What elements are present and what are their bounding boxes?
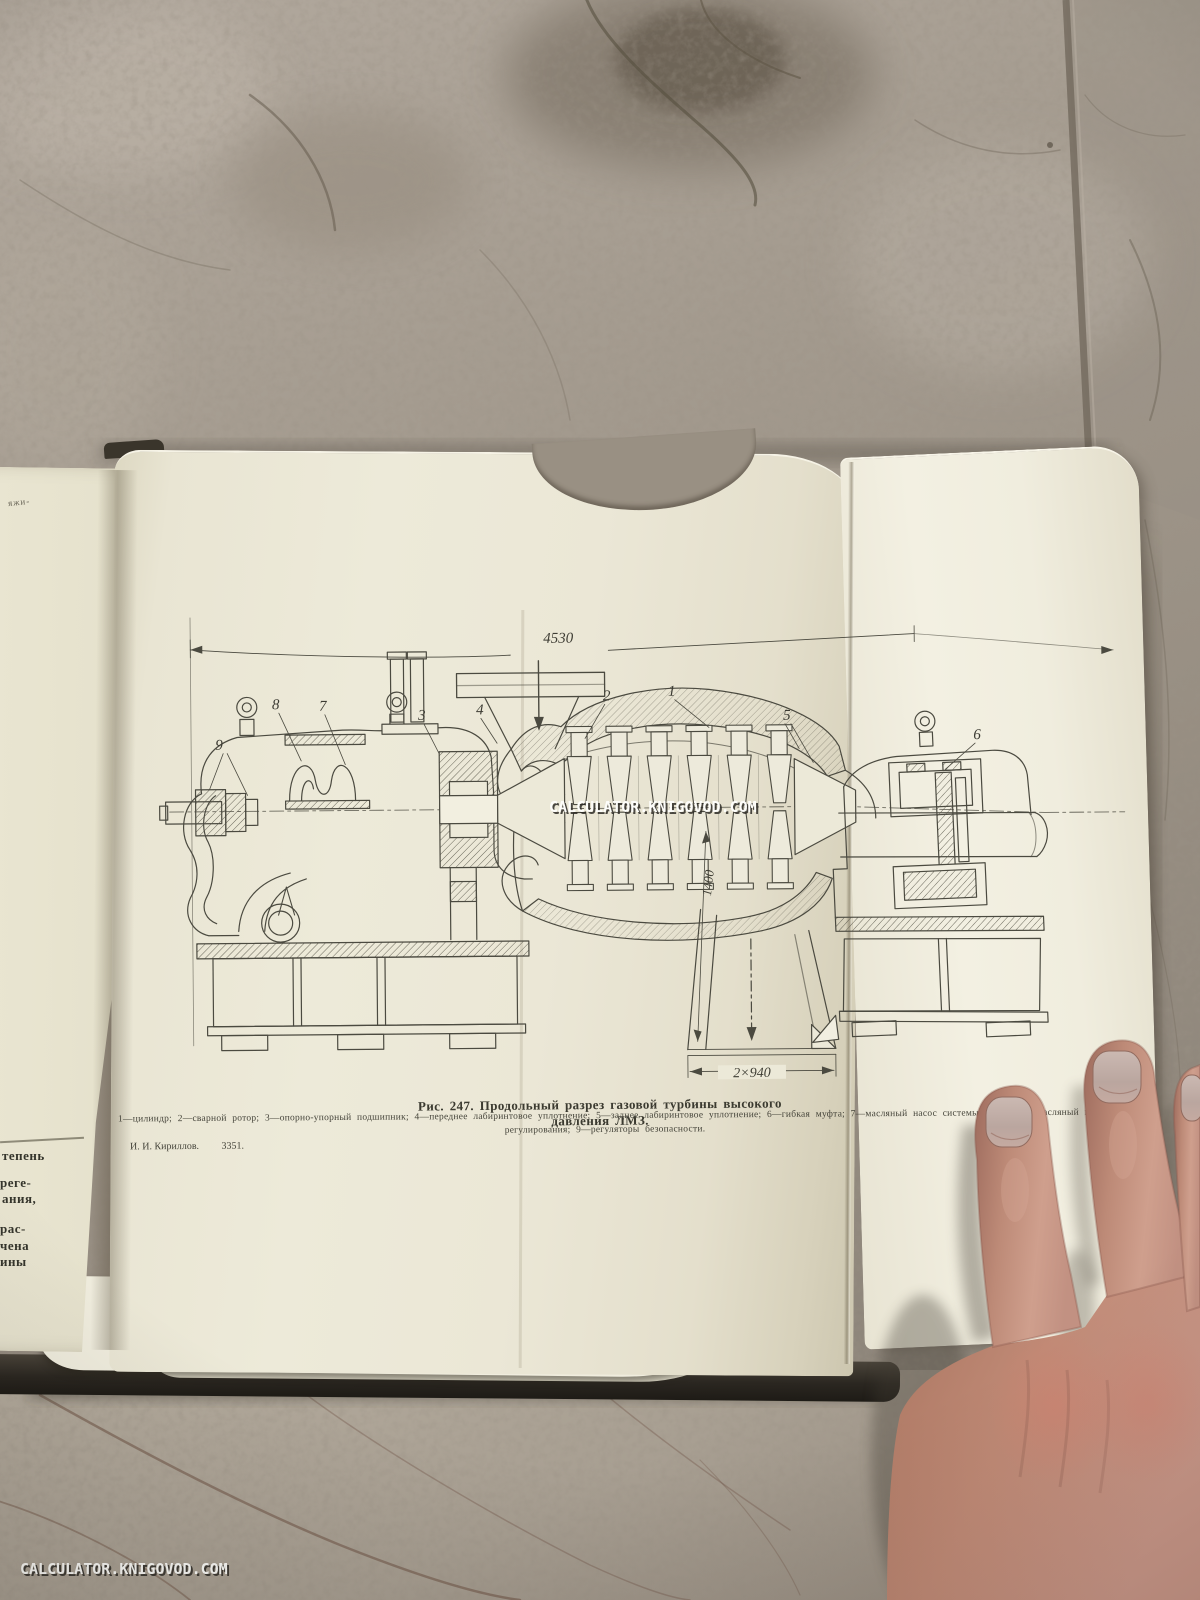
- printers-mark: И. И. Кириллов. 3351.: [130, 1141, 244, 1153]
- callout-5: 5: [783, 708, 791, 724]
- callout-9: 9: [215, 738, 223, 754]
- dim-exhaust-width: 2×940: [733, 1066, 771, 1081]
- index-finger: [975, 1086, 1081, 1347]
- callout-4: 4: [476, 702, 484, 718]
- left-page-fragment: реге-: [0, 1175, 31, 1191]
- photo-scene: яжи- тепень реге- ания, рас- чена ины: [0, 0, 1200, 1600]
- front-bearing-module: [158, 651, 566, 1052]
- dim-overall-length: 4530: [543, 631, 574, 647]
- callout-8: 8: [272, 697, 280, 713]
- spine-shadow: [90, 470, 138, 1350]
- left-page-fragment: рас-: [0, 1221, 26, 1237]
- ring-fingernail: [1181, 1075, 1200, 1121]
- middle-fingernail: [1093, 1051, 1141, 1103]
- left-page-fragment: чена: [0, 1238, 29, 1254]
- dim-exhaust-height: 1400: [699, 869, 717, 897]
- callout-6: 6: [973, 727, 981, 743]
- left-page-fragment: тепень: [2, 1148, 45, 1164]
- hand: [845, 975, 1200, 1600]
- left-page-fragment: ины: [0, 1254, 27, 1270]
- printers-mark-number: 3351.: [221, 1141, 244, 1152]
- watermark-center: CALCULATOR.KNIGOVOD.COM: [549, 798, 757, 816]
- left-page-fragment: ания,: [2, 1191, 36, 1207]
- printers-mark-author: И. И. Кириллов.: [130, 1141, 199, 1152]
- watermark-bottom-left: CALCULATOR.KNIGOVOD.COM: [20, 1560, 228, 1578]
- callout-1: 1: [668, 684, 676, 700]
- callout-3: 3: [417, 708, 426, 724]
- callout-7: 7: [319, 699, 328, 715]
- callout-2: 2: [603, 688, 611, 704]
